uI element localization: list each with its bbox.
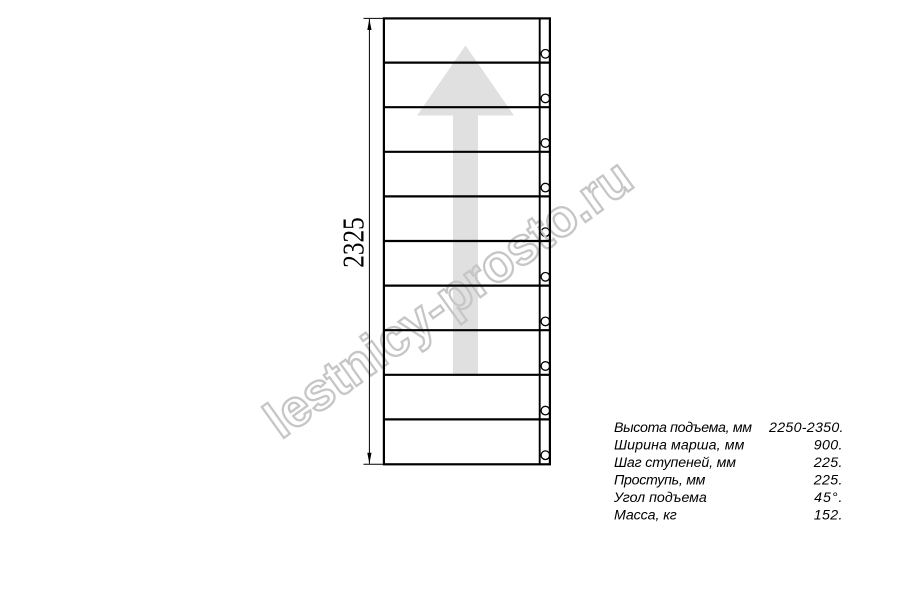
svg-text:2250-2350.: 2250-2350.: [768, 420, 844, 436]
svg-text:45°.: 45°.: [814, 490, 842, 506]
svg-text:225.: 225.: [813, 455, 843, 471]
svg-text:Масса, кг: Масса, кг: [614, 507, 677, 523]
svg-text:Угол подъема: Угол подъема: [613, 490, 707, 506]
svg-text:152.: 152.: [814, 507, 843, 523]
svg-text:900.: 900.: [814, 438, 843, 454]
svg-text:lestnicy-prosto.ru: lestnicy-prosto.ru: [254, 147, 644, 449]
svg-text:225.: 225.: [813, 473, 843, 489]
svg-text:2325: 2325: [336, 217, 371, 267]
svg-text:Высота подъема, мм: Высота подъема, мм: [614, 420, 752, 436]
svg-text:Ширина марша, мм: Ширина марша, мм: [614, 438, 745, 454]
svg-text:Проступь, мм: Проступь, мм: [614, 473, 706, 489]
svg-text:Шаг ступеней, мм: Шаг ступеней, мм: [614, 455, 736, 471]
